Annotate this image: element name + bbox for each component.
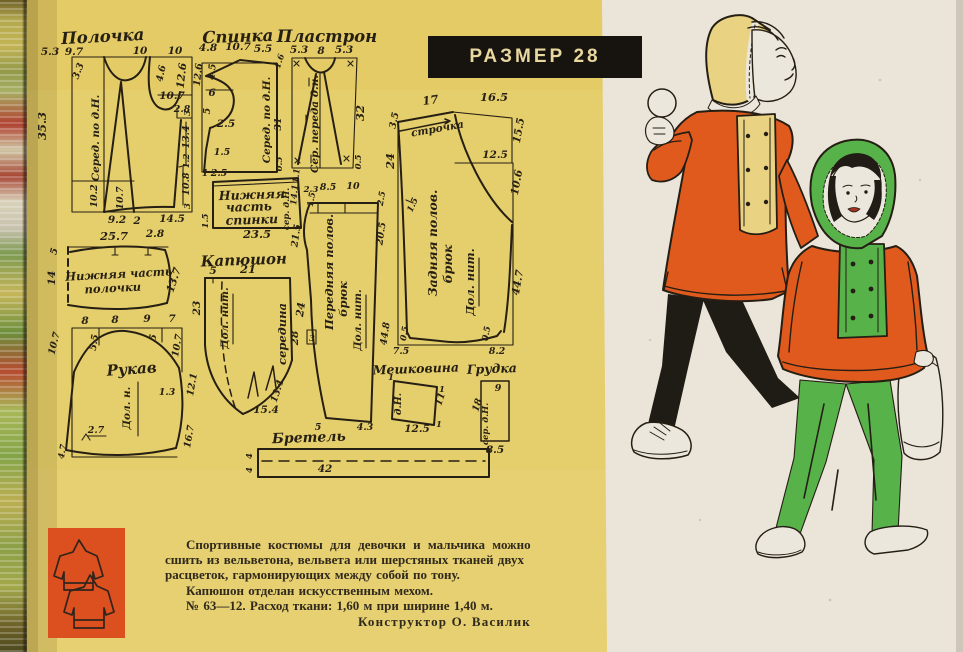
jacket-icon-block [48,528,125,638]
svg-text:Дол. нит.: Дол. нит. [463,248,477,316]
svg-text:5.3: 5.3 [41,46,59,58]
svg-text:0.5: 0.5 [275,157,285,172]
svg-text:д.Н.: д.Н. [393,393,404,415]
svg-text:4.3: 4.3 [357,422,374,433]
svg-text:14.1: 14.1 [289,184,301,205]
svg-text:Дол. нит.: Дол. нит. [352,289,364,351]
svg-text:17: 17 [422,92,440,108]
book-page-photo: Полочка 5.3 9.7 10 10 3.3 35.3 Серед. по… [0,0,963,652]
svg-text:4: 4 [245,467,255,473]
svg-text:8: 8 [81,315,89,327]
svg-text:12.5: 12.5 [404,423,430,435]
svg-text:1: 1 [388,373,394,383]
svg-text:1.3: 1.3 [159,387,176,398]
svg-text:Задняя полов.: Задняя полов. [425,190,440,297]
small-child-bib [838,244,887,338]
svg-text:Дол. нит.: Дол. нит. [219,287,231,349]
fabric-requirements-line: № 63—12. Расход ткани: 1,60 м при ширине… [165,598,537,613]
snowball [648,89,676,117]
svg-text:10.8: 10.8 [181,172,192,196]
svg-text:середина: середина [275,303,289,365]
page-gutter-shadow [22,0,27,652]
svg-text:25.7: 25.7 [99,229,128,243]
svg-text:брюк: брюк [336,281,350,317]
svg-text:сер. д.Н.: сер. д.Н. [481,403,491,445]
svg-text:10.7: 10.7 [159,90,185,102]
svg-text:Мешковина: Мешковина [371,360,459,378]
svg-text:12.5: 12.5 [482,149,508,161]
svg-text:16.5: 16.5 [480,90,508,104]
svg-text:спинки: спинки [225,211,278,228]
svg-text:4: 4 [245,453,255,459]
svg-text:10: 10 [133,45,148,57]
svg-text:35.3: 35.3 [35,112,49,140]
svg-text:5.5: 5.5 [254,43,272,55]
svg-text:2.7: 2.7 [87,425,105,436]
svg-text:2.5: 2.5 [210,168,228,179]
svg-text:Сер. переда д.н.: Сер. переда д.н. [309,75,321,173]
description-line: расцветок, гармонирующих между собой по … [165,567,537,582]
svg-text:14: 14 [46,271,58,286]
svg-text:24: 24 [383,153,397,170]
size-banner: РАЗМЕР 28 [428,36,642,78]
svg-text:3: 3 [309,334,315,344]
svg-text:Грудка: Грудка [466,360,518,377]
svg-text:Дол. н.: Дол. н. [121,387,133,431]
svg-text:5: 5 [202,107,213,114]
svg-text:Серед. по д.Н.: Серед. по д.Н. [261,77,273,164]
svg-text:0.5: 0.5 [354,155,364,170]
svg-text:2: 2 [132,215,140,227]
svg-text:1.2: 1.2 [182,154,192,169]
svg-text:брюк: брюк [440,244,455,283]
svg-text:Рукав: Рукав [105,358,157,380]
svg-text:8: 8 [317,45,325,57]
svg-text:1: 1 [439,385,445,395]
svg-text:Передняя полов.: Передняя полов. [322,214,336,331]
svg-text:13.4: 13.4 [181,125,192,148]
svg-text:9: 9 [495,383,502,394]
svg-text:32: 32 [353,105,367,121]
svg-text:1: 1 [202,168,209,179]
svg-text:2.8: 2.8 [145,228,165,240]
svg-text:5: 5 [209,265,216,277]
svg-text:2.5: 2.5 [216,118,235,130]
svg-text:7: 7 [168,313,176,325]
description-paragraph: Спортивные костюмы для девочки и мальчик… [165,537,537,629]
svg-text:23: 23 [191,301,203,317]
svg-text:10: 10 [346,181,360,192]
svg-text:42: 42 [318,463,333,475]
svg-text:полочки: полочки [84,280,141,297]
svg-text:6: 6 [208,87,216,99]
svg-text:8: 8 [111,314,119,326]
svg-text:1.5: 1.5 [201,214,211,229]
description-line: сшить из вельветона, вельвета или шерстя… [165,552,537,567]
svg-text:23.5: 23.5 [242,227,271,241]
svg-text:14.5: 14.5 [159,213,185,225]
svg-text:4.5: 4.5 [206,63,218,81]
svg-text:Серед. по д.Н.: Серед. по д.Н. [90,95,102,182]
svg-text:3: 3 [183,203,193,209]
svg-text:10.2: 10.2 [89,184,100,208]
svg-text:10.7: 10.7 [115,186,126,210]
svg-text:1.1: 1.1 [291,168,302,184]
svg-text:9.2: 9.2 [108,214,126,226]
svg-text:10: 10 [168,45,183,57]
svg-text:8.2: 8.2 [489,346,506,357]
svg-text:Бретель: Бретель [271,429,346,448]
svg-text:24: 24 [294,302,308,319]
svg-text:31: 31 [273,117,284,130]
size-banner-label: РАЗМЕР 28 [469,46,600,68]
svg-text:8.5: 8.5 [320,182,337,193]
designer-credit: Конструктор О. Василик [165,614,537,629]
description-line: Спортивные костюмы для девочки и мальчик… [165,537,537,552]
svg-text:5.3: 5.3 [335,44,353,56]
svg-text:1: 1 [436,420,442,430]
svg-text:7.5: 7.5 [393,346,410,357]
svg-text:9.7: 9.7 [65,46,84,58]
tall-child-bib [737,114,777,234]
svg-text:10.7: 10.7 [225,41,251,53]
svg-text:1.5: 1.5 [214,147,231,158]
svg-text:5.3: 5.3 [290,44,308,56]
svg-text:9: 9 [143,313,151,325]
svg-text:3: 3 [183,110,193,116]
description-line: Капюшон отделан искусственным мехом. [165,583,537,598]
svg-text:15.4: 15.4 [253,404,279,416]
svg-text:4.8: 4.8 [199,42,218,54]
svg-text:21: 21 [239,262,256,276]
small-child-hand [914,350,933,366]
svg-text:28: 28 [289,330,301,346]
